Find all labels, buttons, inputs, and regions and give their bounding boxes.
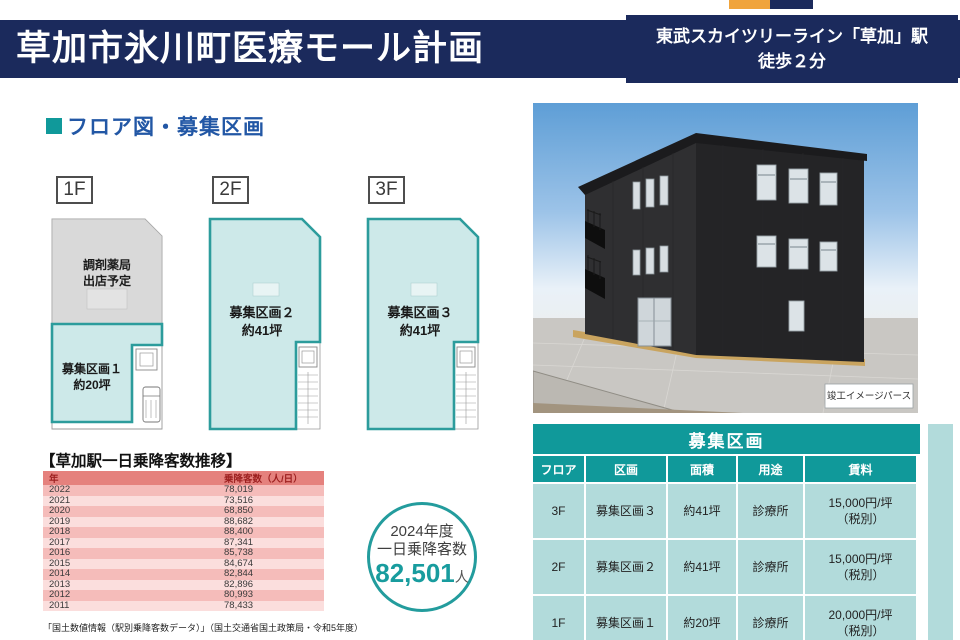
count-cell: 78,019	[218, 485, 324, 496]
ridership-highlight-circle: 2024年度 一日乗降客数 82,501人	[367, 502, 477, 612]
rent-amount: 15,000円/坪	[828, 495, 892, 511]
col-header-count: 乗降客数（人/日）	[218, 471, 324, 485]
highlight-label: 一日乗降客数	[377, 541, 467, 559]
year-cell: 2012	[43, 590, 218, 601]
elevator	[136, 349, 157, 370]
year-cell: 2016	[43, 548, 218, 559]
zone1-area-label: 約20坪	[73, 377, 110, 392]
ridership-header-row: 年 乗降客数（人/日）	[43, 471, 324, 485]
units-col-use: 用途	[738, 456, 803, 482]
zone2-label: 募集区画２	[228, 305, 294, 320]
table-row: 202278,019	[43, 485, 324, 496]
top-accent-orange	[729, 0, 770, 9]
section-heading: フロア図・募集区画	[46, 111, 265, 141]
brochure-page: 草加市氷川町医療モール計画 東武スカイツリーライン「草加」駅 徒歩２分 フロア図…	[0, 0, 960, 640]
units-table-title: 募集区画	[533, 424, 920, 454]
floorplan-1f: 調剤薬局 出店予定 募集区画１ 約20坪	[50, 217, 165, 432]
year-cell: 2014	[43, 569, 218, 580]
floor-label-2f: 2F	[212, 176, 249, 204]
table-row: 201888,400	[43, 527, 324, 538]
rent-amount: 15,000円/坪	[828, 551, 892, 567]
unit-floor: 3F	[533, 484, 584, 538]
pharmacy-label-1: 調剤薬局	[83, 257, 131, 272]
count-cell: 80,993	[218, 590, 324, 601]
walk-time: 徒歩２分	[626, 50, 958, 74]
unit-rent: 15,000円/坪（税別）	[805, 540, 916, 594]
plan-detail-box	[253, 283, 279, 296]
zone1-label: 募集区画１	[61, 361, 122, 376]
station-line: 東武スカイツリーライン「草加」駅	[626, 24, 958, 50]
unit-name: 募集区画１	[586, 596, 666, 640]
highlight-value-row: 82,501人	[375, 559, 469, 592]
table-row: 201382,896	[43, 580, 324, 591]
year-cell: 2020	[43, 506, 218, 517]
units-col-rent: 賃料	[805, 456, 916, 482]
count-cell: 82,844	[218, 569, 324, 580]
count-cell: 88,400	[218, 527, 324, 538]
pharmacy-label-2: 出店予定	[83, 273, 131, 288]
highlight-unit: 人	[455, 569, 469, 585]
unit-rent: 20,000円/坪（税別）	[805, 596, 916, 640]
unit-name: 募集区画２	[586, 540, 666, 594]
highlight-year: 2024年度	[390, 523, 453, 541]
floorplan-3f: 募集区画３ 約41坪	[366, 217, 481, 432]
unit-floor: 2F	[533, 540, 584, 594]
zone2-area-label: 約41坪	[242, 323, 282, 338]
table-row: 201988,682	[43, 517, 324, 528]
rent-note: （税別）	[836, 567, 884, 583]
rent-note: （税別）	[836, 623, 884, 639]
building-front-face	[696, 141, 864, 362]
table-row: 201280,993	[43, 590, 324, 601]
units-grid: フロア 区画 面積 用途 賃料 3F 募集区画３ 約41坪 診療所 15,000…	[533, 456, 920, 640]
ridership-table: 年 乗降客数（人/日） 202278,019 202173,516 202068…	[43, 471, 324, 611]
unit-use: 診療所	[738, 484, 803, 538]
plan-detail-box	[411, 283, 437, 296]
unit-area: 約41坪	[668, 484, 736, 538]
floor-label-1f: 1F	[56, 176, 93, 204]
table-row: 202068,850	[43, 506, 324, 517]
year-cell: 2011	[43, 601, 218, 612]
render-caption: 竣工イメージパース	[827, 390, 911, 402]
rent-note: （税別）	[836, 511, 884, 527]
ridership-table-title: 【草加駅一日乗降客数推移】	[40, 449, 242, 471]
count-cell: 78,433	[218, 601, 324, 612]
units-col-floor: フロア	[533, 456, 584, 482]
highlight-value: 82,501	[375, 558, 455, 588]
unit-use: 診療所	[738, 596, 803, 640]
table-row: 201685,738	[43, 548, 324, 559]
unit-name: 募集区画３	[586, 484, 666, 538]
section-heading-label: フロア図・募集区画	[67, 111, 265, 141]
plan-detail-box	[87, 289, 127, 309]
table-row: 201178,433	[43, 601, 324, 612]
table-row: 201482,844	[43, 569, 324, 580]
floorplan-2f: 募集区画２ 約41坪	[208, 217, 323, 432]
zone3-label: 募集区画３	[386, 305, 452, 320]
square-bullet-icon	[46, 118, 62, 134]
unit-area: 約20坪	[668, 596, 736, 640]
rent-amount: 20,000円/坪	[828, 607, 892, 623]
ridership-footnote: 「国土数値情報（駅別乗降客数データ）」（国土交通省国土政策局・令和5年度）	[43, 621, 363, 634]
page-title: 草加市氷川町医療モール計画	[16, 20, 484, 78]
top-accent-navy	[770, 0, 813, 9]
units-col-area: 面積	[668, 456, 736, 482]
col-header-year: 年	[43, 471, 218, 485]
table-row: 201787,341	[43, 538, 324, 549]
units-col-unit: 区画	[586, 456, 666, 482]
car-outline	[143, 387, 160, 422]
year-cell: 2022	[43, 485, 218, 496]
year-cell: 2018	[43, 527, 218, 538]
count-cell: 68,850	[218, 506, 324, 517]
station-access-box: 東武スカイツリーライン「草加」駅 徒歩２分	[626, 15, 958, 83]
unit-use: 診療所	[738, 540, 803, 594]
table-row: 201584,674	[43, 559, 324, 570]
zone3-area-label: 約41坪	[400, 323, 440, 338]
floor-label-3f: 3F	[368, 176, 405, 204]
unit-rent: 15,000円/坪（税別）	[805, 484, 916, 538]
decor-teal-strip	[928, 424, 953, 640]
building-render: 竣工イメージパース	[533, 103, 918, 413]
units-table: 募集区画 フロア 区画 面積 用途 賃料 3F 募集区画３ 約41坪 診療所 1…	[533, 424, 920, 640]
unit-floor: 1F	[533, 596, 584, 640]
count-cell: 85,738	[218, 548, 324, 559]
table-row: 202173,516	[43, 496, 324, 507]
unit-area: 約41坪	[668, 540, 736, 594]
